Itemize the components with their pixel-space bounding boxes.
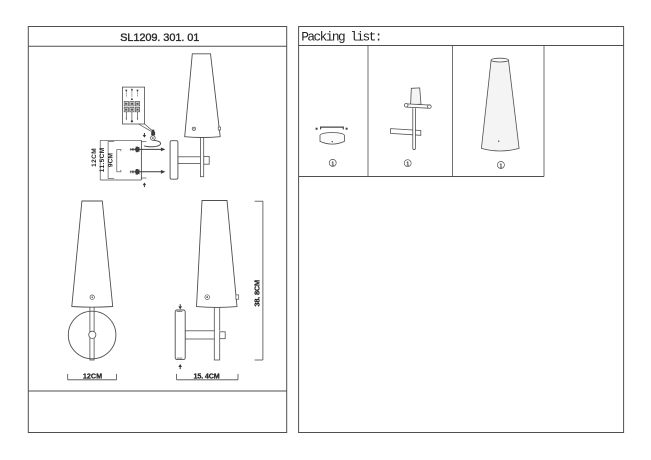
svg-text:12CM: 12CM — [91, 148, 98, 167]
svg-text:Packing list:: Packing list: — [301, 29, 381, 44]
svg-text:SL1209. 301. 01: SL1209. 301. 01 — [120, 32, 199, 44]
svg-text:9CM: 9CM — [108, 153, 115, 167]
svg-text:12CM: 12CM — [83, 371, 102, 380]
svg-text:38. 8CM: 38. 8CM — [252, 280, 261, 307]
svg-text:15. 4CM: 15. 4CM — [194, 371, 220, 380]
svg-text:11.5CM: 11.5CM — [99, 147, 106, 172]
svg-text:1: 1 — [406, 162, 409, 168]
svg-text:1: 1 — [331, 161, 334, 167]
svg-text:1: 1 — [499, 163, 502, 169]
